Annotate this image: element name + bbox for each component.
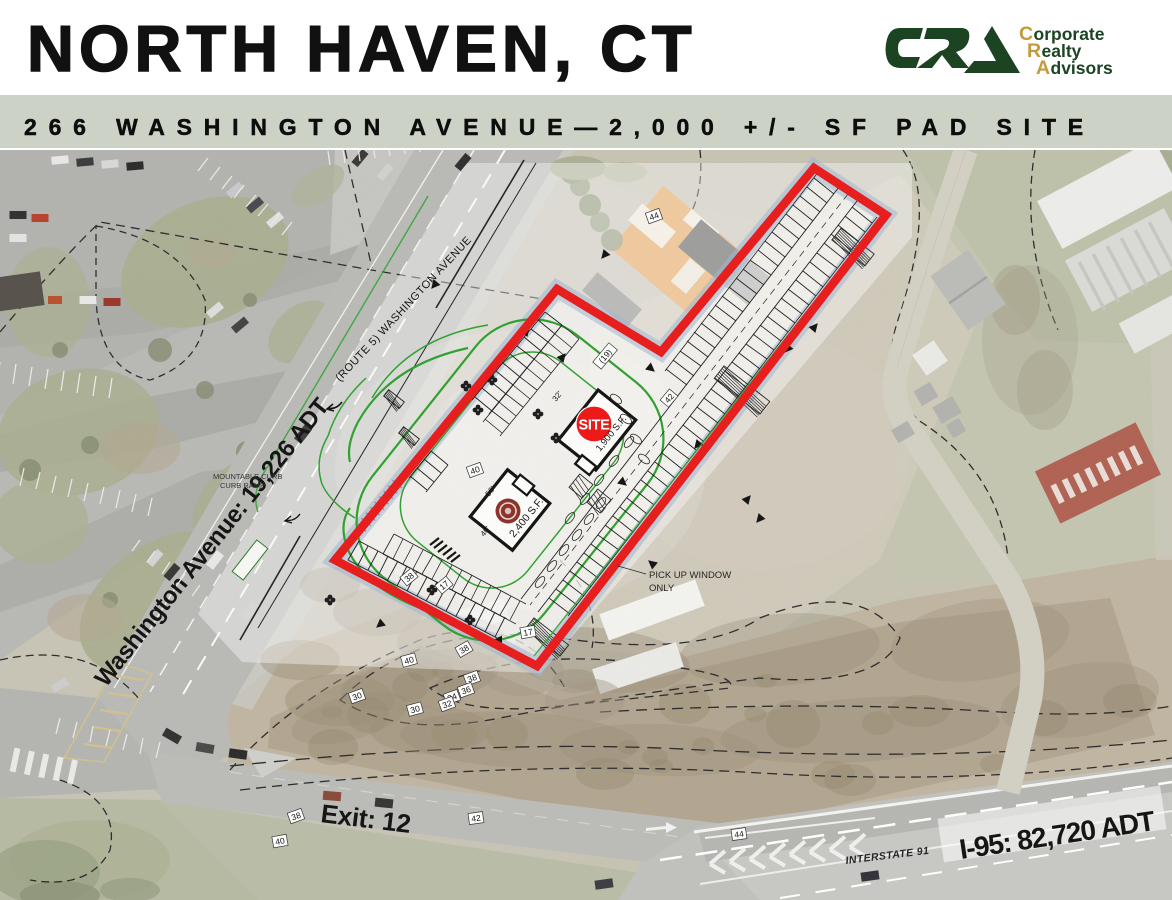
- svg-text:A: A: [1036, 57, 1050, 79]
- svg-text:dvisors: dvisors: [1051, 58, 1114, 78]
